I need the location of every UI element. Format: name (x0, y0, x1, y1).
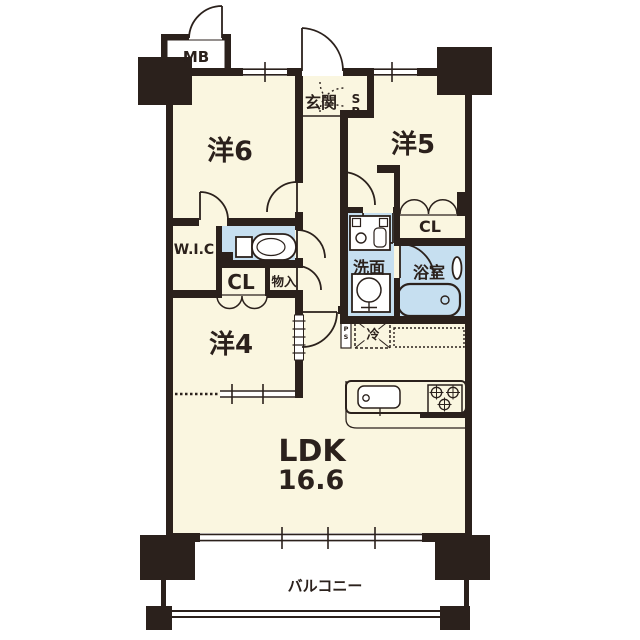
floorplan-drawing: 洋6 洋5 洋4 LDK 16.6 玄関 S B MB W.I.C CL 物入 … (0, 0, 640, 640)
label-ps-vertical-p: P (344, 325, 349, 333)
label-ldk: LDK (278, 434, 347, 469)
label-west5: 洋5 (391, 129, 435, 160)
floorplan-page: 洋6 洋5 洋4 LDK 16.6 玄関 S B MB W.I.C CL 物入 … (0, 0, 640, 640)
label-shoebox-s: S (352, 92, 361, 106)
label-ps-vertical-s: S (344, 333, 349, 341)
label-shoebox-b: B (351, 105, 360, 119)
west4-sliding-partition (293, 315, 306, 360)
label-closet-west5: CL (419, 217, 441, 236)
label-balcony: バルコニー (288, 577, 363, 595)
label-storage: 物入 (271, 274, 297, 289)
label-closet-west4: CL (227, 270, 255, 294)
label-washroom: 洗面 (353, 258, 385, 277)
entrance-door (302, 28, 343, 71)
bathroom-counter-icon (453, 257, 462, 279)
label-ldk-size: 16.6 (278, 465, 345, 496)
label-wic: W.I.C (174, 242, 214, 258)
label-west4: 洋4 (209, 329, 253, 360)
washer-pan-icon (350, 216, 390, 250)
balcony-rail (166, 611, 470, 617)
label-pipe-space: PS (219, 256, 231, 265)
label-refrigerator: 冷 (366, 327, 379, 343)
label-west6: 洋6 (207, 135, 253, 167)
vanity-sink-icon (352, 274, 390, 312)
meter-box-door (189, 6, 222, 38)
toilet-icon (236, 234, 296, 260)
label-meter-box: MB (183, 48, 209, 66)
label-entrance: 玄関 (305, 93, 337, 112)
label-bathroom: 浴室 (413, 263, 445, 282)
